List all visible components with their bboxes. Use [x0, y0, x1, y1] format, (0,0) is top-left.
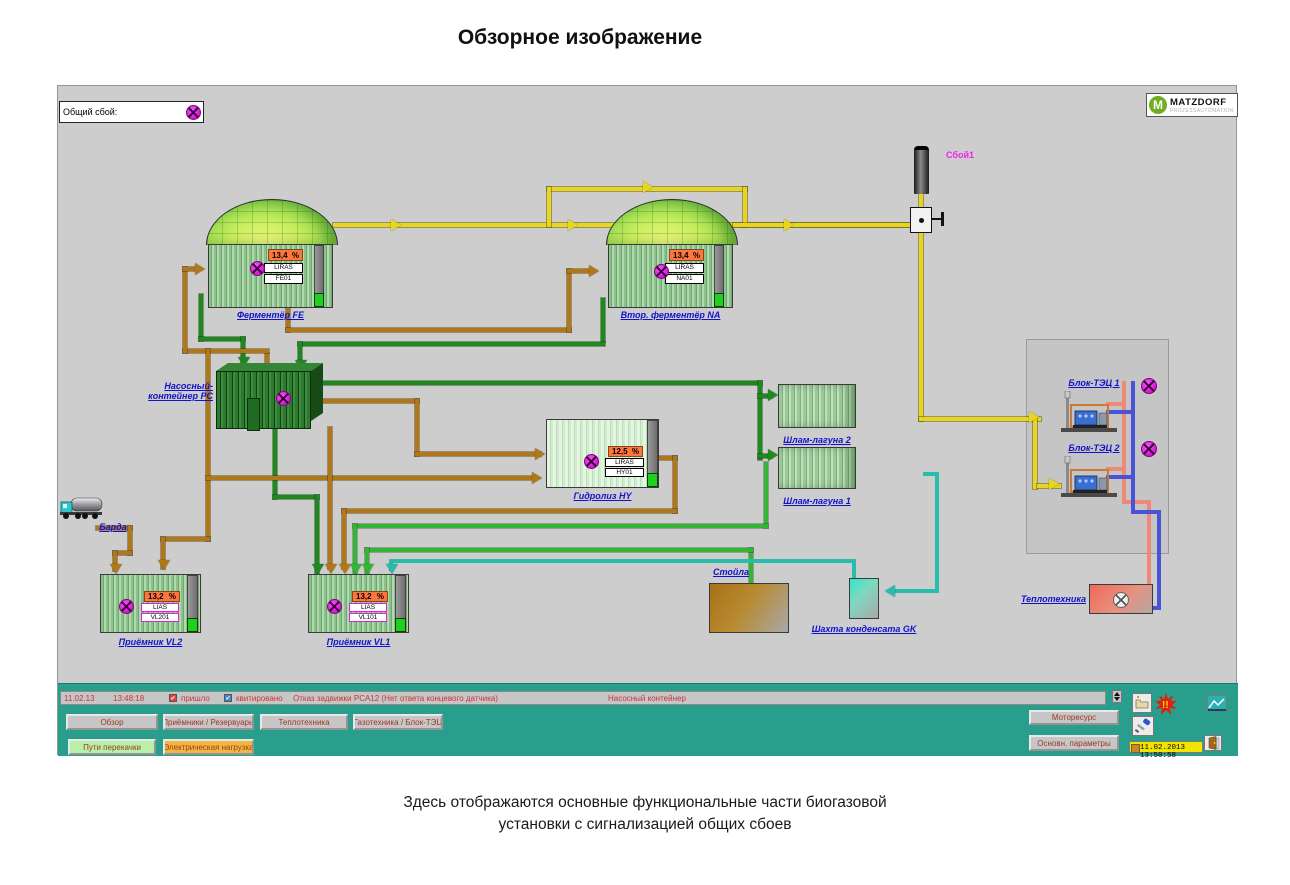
pipe-segment [328, 427, 332, 569]
alarm-scroll-spinner[interactable] [1112, 690, 1122, 703]
valve-handle-bar [941, 212, 944, 226]
fermenter-na-link[interactable]: Втор. ферментёр NA [606, 310, 735, 320]
vendor-logo: M MATZDORF PROZESSAUTOMATION [1146, 93, 1238, 117]
flow-arrow [312, 564, 324, 574]
nav-gas-chp-button[interactable]: Газотехника / Блок-ТЭЦ [353, 714, 443, 730]
alarm-ack-label: квитировано [236, 694, 283, 703]
logo-title: MATZDORF [1170, 97, 1227, 108]
vl1-value-box: 13,2% [352, 591, 388, 602]
na-tag-id: NA01 [665, 274, 704, 284]
flow-arrow [1029, 411, 1039, 423]
heating-link[interactable]: Теплотехника [1006, 594, 1086, 604]
lagoon2-link[interactable]: Шлам-лагуна 2 [764, 435, 870, 445]
receiver-vl2-link[interactable]: Приёмник VL2 [100, 637, 201, 647]
flow-arrow [339, 564, 351, 574]
status-square [395, 618, 406, 632]
alarm-ack-checkbox[interactable]: ✔ [224, 694, 232, 702]
pipe-segment [286, 328, 571, 332]
nav-motor-resource-button[interactable]: Моторесурс [1029, 710, 1119, 725]
fe-value-box: 13,4% [268, 249, 303, 261]
svg-text:!!: !! [1162, 700, 1169, 711]
bottom-bar: 11.02.13 13:48:18 ✔ пришло ✔ квитировано… [58, 683, 1238, 756]
nav-transfer-paths-button[interactable]: Пути перекачки [68, 739, 156, 755]
pipe-segment [199, 337, 245, 341]
pipe-segment [749, 548, 753, 584]
alarm-came-checkbox[interactable]: ✔ [169, 694, 177, 702]
vl2-tag-id: VL201 [141, 613, 179, 622]
condensate-shaft-box [849, 578, 879, 619]
pipe-segment [415, 452, 541, 456]
flow-arrow [158, 560, 170, 570]
alarm-time: 13:48:18 [113, 694, 144, 703]
general-fault-label: Общий сбой: [63, 107, 117, 117]
alarm-came-label: пришло [181, 694, 210, 703]
chp2-fault-indicator [1141, 441, 1157, 457]
alarm-list-button[interactable]: !! [1155, 693, 1177, 715]
receiver-vl1-link[interactable]: Приёмник VL1 [308, 637, 409, 647]
pipe-segment [1131, 510, 1160, 514]
valve-dot [919, 218, 924, 223]
vl2-value: 13,2 [148, 592, 164, 601]
chp2-link[interactable]: Блок-ТЭЦ 2 [1063, 443, 1125, 453]
pipe-segment [547, 187, 551, 227]
truck-icon [59, 495, 103, 521]
flow-arrow [535, 448, 545, 460]
truck-label: Барда [88, 522, 138, 532]
alarm-date: 11.02.13 [64, 694, 95, 703]
pipe-segment [353, 524, 768, 528]
pipe-segment [365, 548, 753, 552]
calendar-icon [1131, 744, 1140, 753]
folder-icon [1134, 695, 1150, 711]
pipe-segment [1131, 381, 1135, 514]
vl2-fault-indicator [119, 599, 134, 614]
vl1-tag-id: VL101 [349, 613, 387, 622]
new-window-button[interactable] [1132, 693, 1152, 713]
pump-container-link[interactable]: Насосный- контейнер PC [148, 381, 213, 401]
status-square [714, 293, 724, 307]
fe-value: 13,4 [272, 251, 288, 260]
pipe-segment [315, 495, 319, 574]
service-button[interactable] [1132, 716, 1154, 736]
hy-tag-id: HY01 [605, 468, 644, 477]
heating-box [1089, 584, 1153, 614]
lagoon1-link[interactable]: Шлам-лагуна 1 [764, 496, 870, 506]
page: Обзорное изображение Общий сбой: M MATZD… [0, 0, 1290, 885]
pipe-segment [601, 298, 605, 342]
flow-arrow [589, 265, 599, 277]
stables-link[interactable]: Стойла [703, 567, 759, 577]
nav-overview-button[interactable]: Обзор [66, 714, 158, 730]
pipe-segment [206, 476, 536, 480]
pump-container [216, 363, 328, 429]
flow-arrow [768, 389, 778, 401]
alarm-location: Насосный контейнер [608, 694, 686, 703]
exit-button[interactable] [1204, 735, 1222, 751]
flow-arrow [532, 472, 542, 484]
fe-unit: % [292, 251, 299, 260]
status-square [187, 618, 198, 632]
flow-arrow [391, 219, 401, 231]
exit-door-icon [1206, 736, 1220, 750]
fe-tag-type: LIRAS [264, 263, 303, 273]
chp2-engine-icon [1059, 456, 1119, 498]
logo-m-icon: M [1149, 96, 1167, 114]
datetime-badge: 11.02.2013 13:50:58 [1129, 741, 1203, 753]
pipe-segment [1033, 417, 1037, 489]
hy-value: 12,5 [612, 447, 628, 456]
vl2-unit: % [169, 592, 176, 601]
flare-stack [914, 146, 929, 194]
na-unit: % [693, 251, 700, 260]
na-value-box: 13,4% [669, 249, 704, 261]
flow-arrow [885, 585, 895, 597]
pipe-segment [183, 349, 269, 353]
general-fault-indicator [186, 105, 201, 120]
na-fault-indicator [654, 264, 669, 279]
flow-arrow [568, 219, 578, 231]
hydrolysis-link[interactable]: Гидролиз HY [546, 491, 659, 501]
page-title: Обзорное изображение [0, 26, 1160, 50]
pc-top-face [216, 363, 323, 371]
screwdriver-icon [1134, 718, 1152, 734]
scroll-up-icon [1114, 692, 1120, 696]
status-square [314, 293, 324, 307]
pipe-segment [273, 427, 277, 499]
pipe-segment [183, 267, 187, 353]
scroll-down-icon [1114, 697, 1120, 701]
pc-fault-indicator [276, 391, 291, 406]
na-value: 13,4 [673, 251, 689, 260]
nav-heating-button[interactable]: Теплотехника [260, 714, 348, 730]
caption-line2: установки с сигнализацией общих сбоев [0, 814, 1290, 836]
hy-fault-indicator [584, 454, 599, 469]
pc-label-line2: контейнер PC [148, 391, 213, 401]
alarm-row[interactable]: 11.02.13 13:48:18 ✔ пришло ✔ квитировано… [60, 691, 1106, 705]
flow-arrow [110, 564, 122, 574]
gas-valve[interactable] [910, 207, 932, 233]
pipe-segment [733, 223, 923, 227]
pipe-segment [567, 269, 571, 332]
pipe-segment [673, 456, 677, 513]
pipe-segment [415, 399, 419, 456]
stables-box [709, 583, 789, 633]
flow-arrow [325, 564, 337, 574]
lagoon1-basin [778, 447, 856, 489]
flow-arrow [386, 564, 398, 574]
pipe-segment [758, 381, 762, 460]
pipe-segment [919, 417, 1041, 421]
lagoon2-basin [778, 384, 856, 428]
flow-arrow [784, 219, 794, 231]
scada-panel: Общий сбой: M MATZDORF PROZESSAUTOMATION… [57, 85, 1237, 755]
pipe-segment [743, 187, 747, 227]
condensate-shaft-link[interactable]: Шахта конденсата GK [799, 624, 929, 634]
flow-arrow [362, 564, 374, 574]
pipe-segment [342, 509, 677, 513]
pipe-segment [1122, 500, 1150, 504]
pipe-segment [342, 509, 346, 569]
pipe-segment [389, 559, 856, 563]
fermenter-fe-link[interactable]: Ферментёр FE [206, 310, 335, 320]
nav-receivers-button[interactable]: Приёмники / Резервуары [163, 714, 254, 730]
fe-tag-id: FE01 [264, 274, 303, 284]
flow-arrow [195, 263, 205, 275]
hy-unit: % [632, 447, 639, 456]
pipe-segment [206, 349, 210, 541]
vl1-tag-type: LIAS [349, 603, 387, 612]
vl2-tag-type: LIAS [141, 603, 179, 612]
logo-subtitle: PROZESSAUTOMATION [1170, 108, 1234, 114]
fe-fault-indicator [250, 261, 265, 276]
chp1-fault-indicator [1141, 378, 1157, 394]
page-caption: Здесь отображаются основные функциональн… [0, 792, 1290, 836]
flow-arrow [1049, 478, 1059, 490]
pc-front-face [216, 371, 311, 429]
vl1-value: 13,2 [356, 592, 372, 601]
datetime-value: 11.02.2013 13:50:58 [1140, 744, 1202, 760]
caption-line1: Здесь отображаются основные функциональн… [0, 792, 1290, 814]
pc-door [247, 398, 260, 431]
pipe-segment [1157, 510, 1161, 610]
heating-status-indicator [1113, 592, 1129, 608]
pc-label-line1: Насосный- [148, 381, 213, 391]
chp1-engine-icon [1059, 391, 1119, 433]
vl1-fault-indicator [327, 599, 342, 614]
alarm-burst-icon: !! [1155, 693, 1177, 715]
vl2-value-box: 13,2% [144, 591, 180, 602]
pipe-segment [273, 495, 319, 499]
flow-arrow [350, 564, 362, 574]
pipe-segment [935, 472, 939, 593]
chp1-link[interactable]: Блок-ТЭЦ 1 [1063, 378, 1125, 388]
pc-side-face [311, 363, 323, 421]
pipe-segment [161, 537, 210, 541]
na-tag-type: LIRAS [665, 263, 704, 273]
pipe-segment [319, 399, 419, 403]
flare-alarm-label: Сбой1 [946, 150, 974, 160]
flow-arrow [768, 449, 778, 461]
hy-value-box: 12,5% [608, 446, 643, 457]
general-fault-box: Общий сбой: [59, 101, 204, 123]
flow-arrow [643, 181, 653, 193]
pipe-segment [199, 294, 203, 341]
trend-icon [1208, 697, 1226, 711]
alarm-message: Отказ задвижки PCA12 (Нет ответа концево… [293, 694, 498, 703]
status-square [647, 473, 658, 487]
trend-button[interactable] [1207, 695, 1227, 712]
pipe-segment [894, 589, 939, 593]
pipe-segment [313, 381, 762, 385]
nav-electric-load-button[interactable]: Электрическая нагрузка [163, 739, 254, 755]
nav-main-params-button[interactable]: Основн. параметры [1029, 735, 1119, 751]
pipe-segment [298, 342, 605, 346]
pipe-segment [764, 462, 768, 528]
vl1-unit: % [377, 592, 384, 601]
hy-tag-type: LIRAS [605, 458, 644, 467]
